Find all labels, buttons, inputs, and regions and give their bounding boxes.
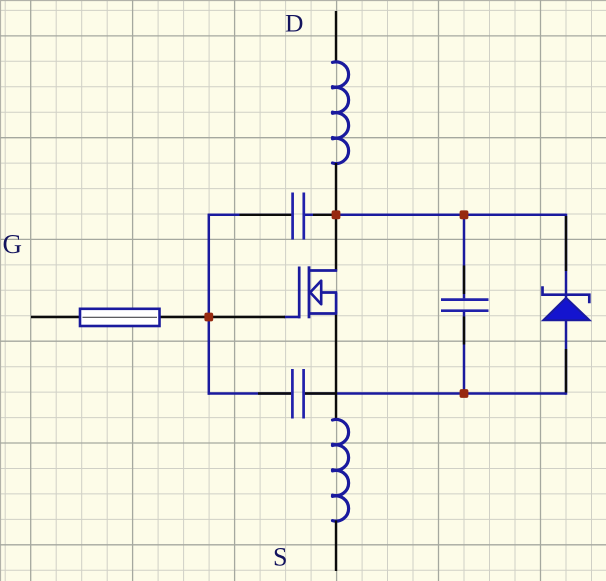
svg-text:S: S	[273, 543, 287, 572]
svg-text:G: G	[3, 229, 23, 259]
svg-text:D: D	[285, 9, 303, 38]
